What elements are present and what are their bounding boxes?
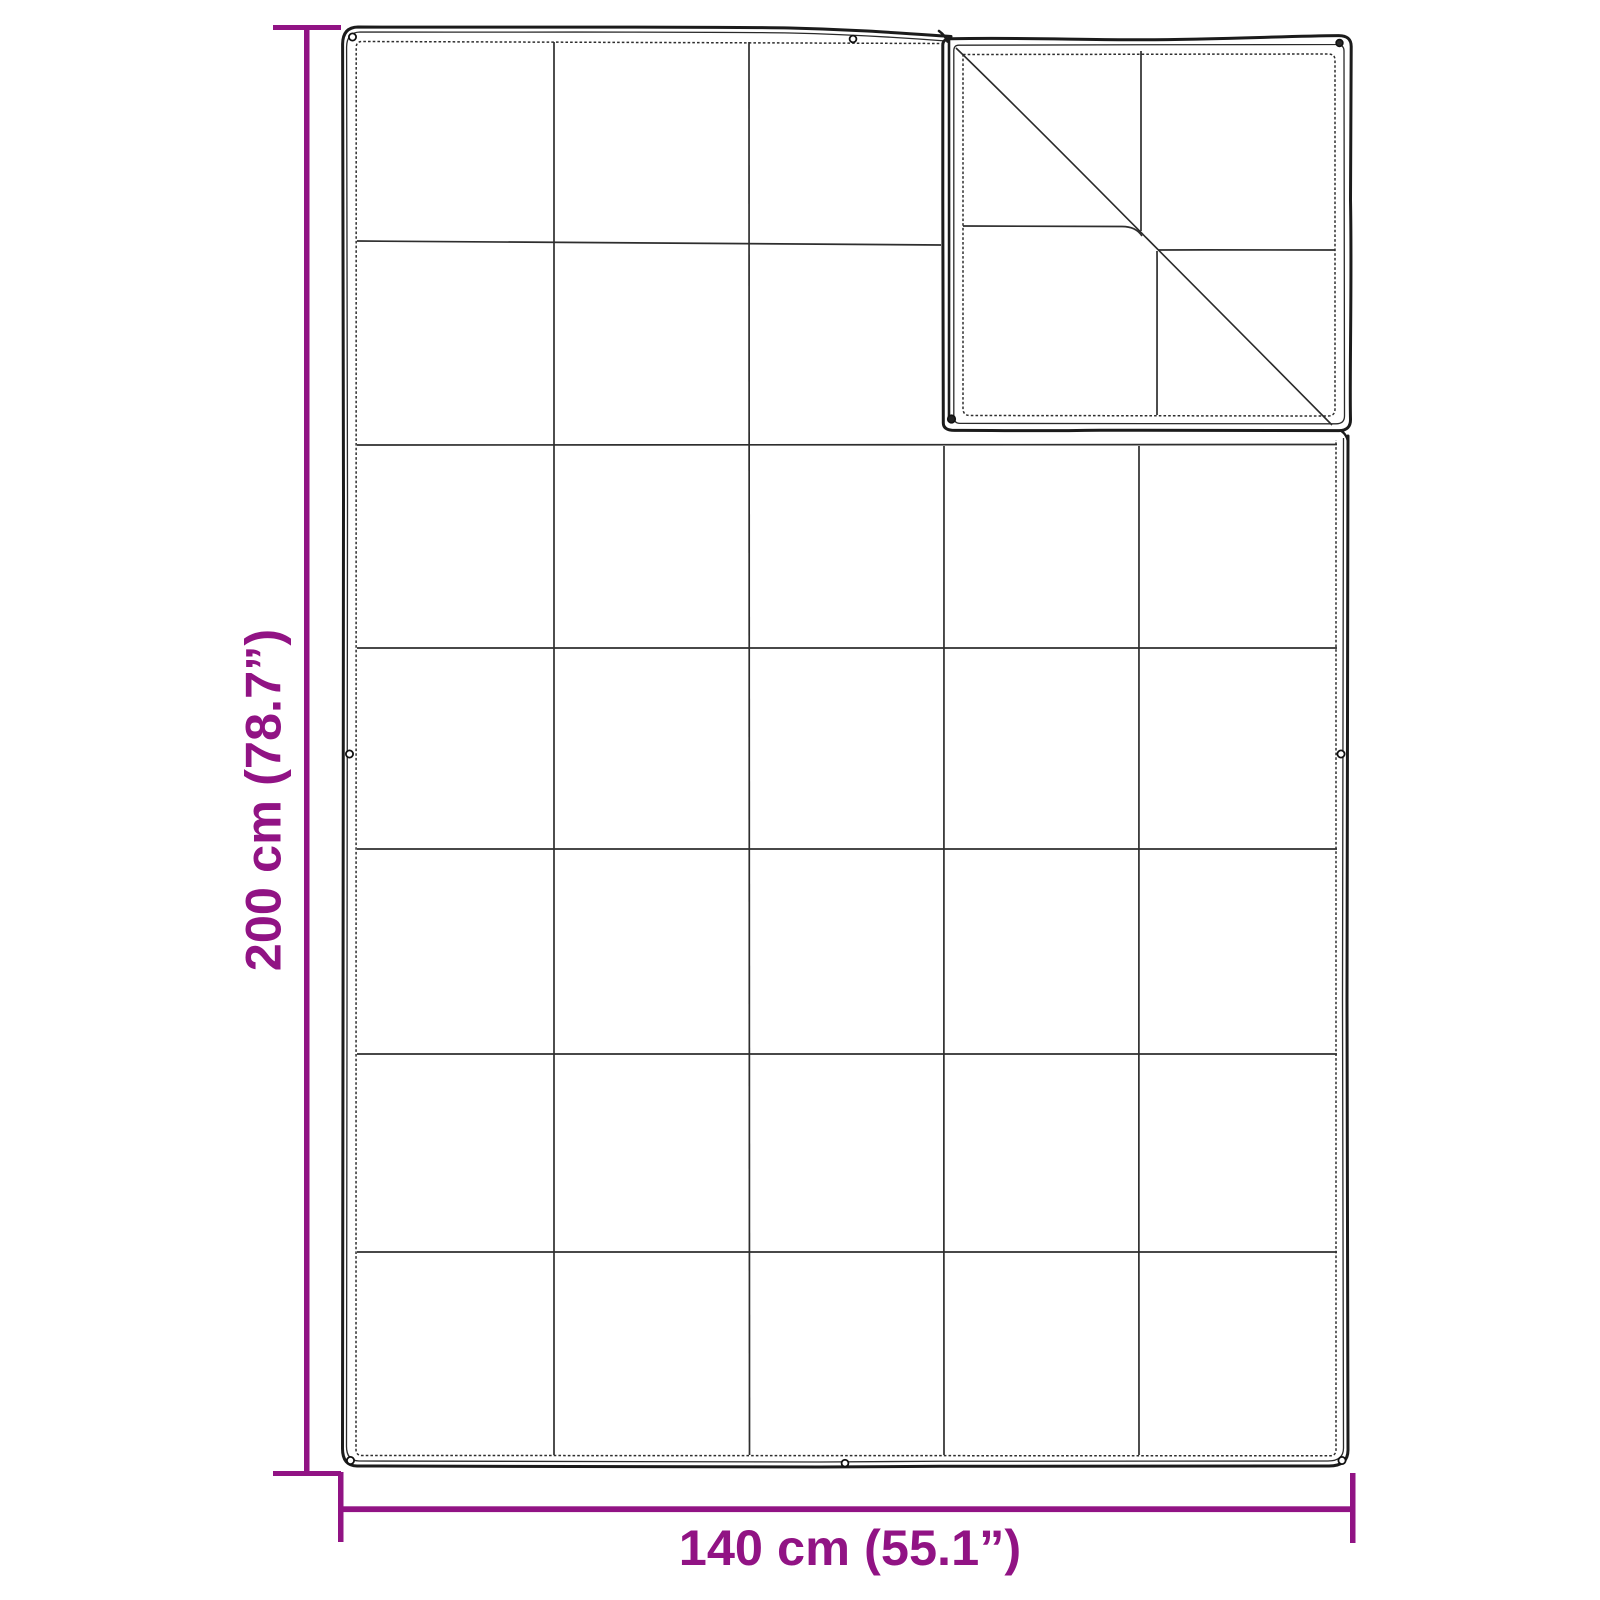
svg-text:200 cm (78.7”): 200 cm (78.7”)	[235, 629, 292, 971]
svg-text:140 cm (55.1”): 140 cm (55.1”)	[679, 1519, 1021, 1576]
